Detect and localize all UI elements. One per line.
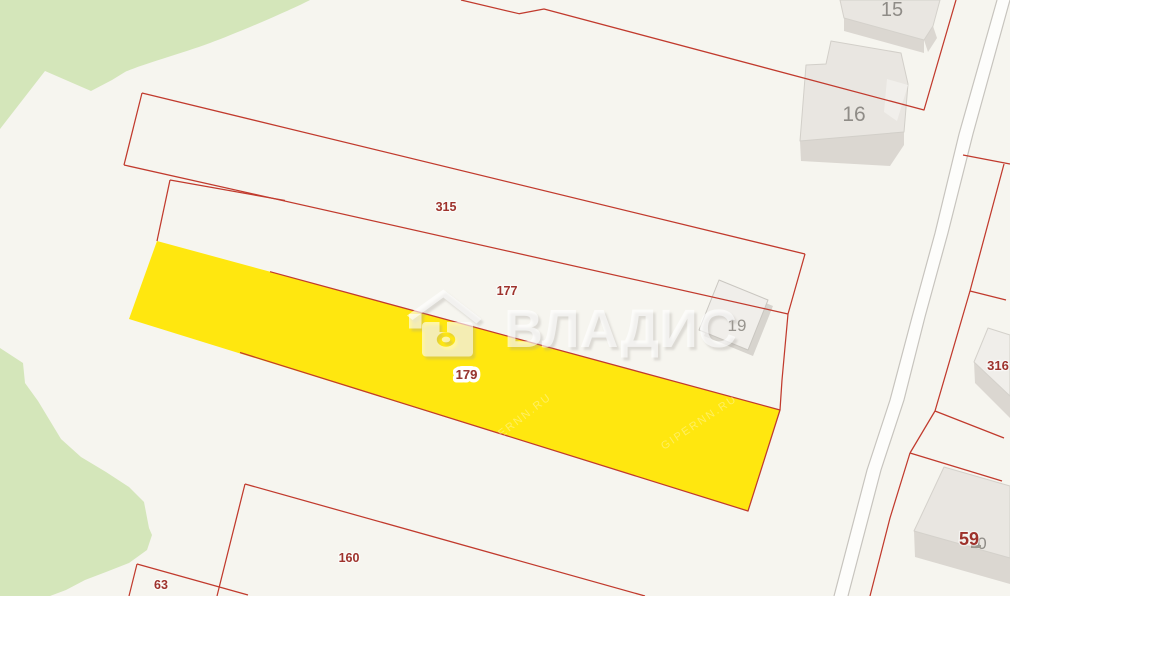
- svg-text:59: 59: [959, 529, 979, 549]
- svg-text:177: 177: [497, 284, 518, 298]
- svg-text:316: 316: [987, 358, 1009, 373]
- svg-text:179: 179: [456, 367, 478, 382]
- svg-text:16: 16: [842, 103, 865, 126]
- svg-text:160: 160: [339, 551, 360, 565]
- svg-text:ВЛАДИС: ВЛАДИС: [504, 299, 737, 359]
- svg-text:15: 15: [881, 0, 903, 21]
- svg-text:63: 63: [154, 578, 168, 592]
- svg-text:315: 315: [436, 200, 457, 214]
